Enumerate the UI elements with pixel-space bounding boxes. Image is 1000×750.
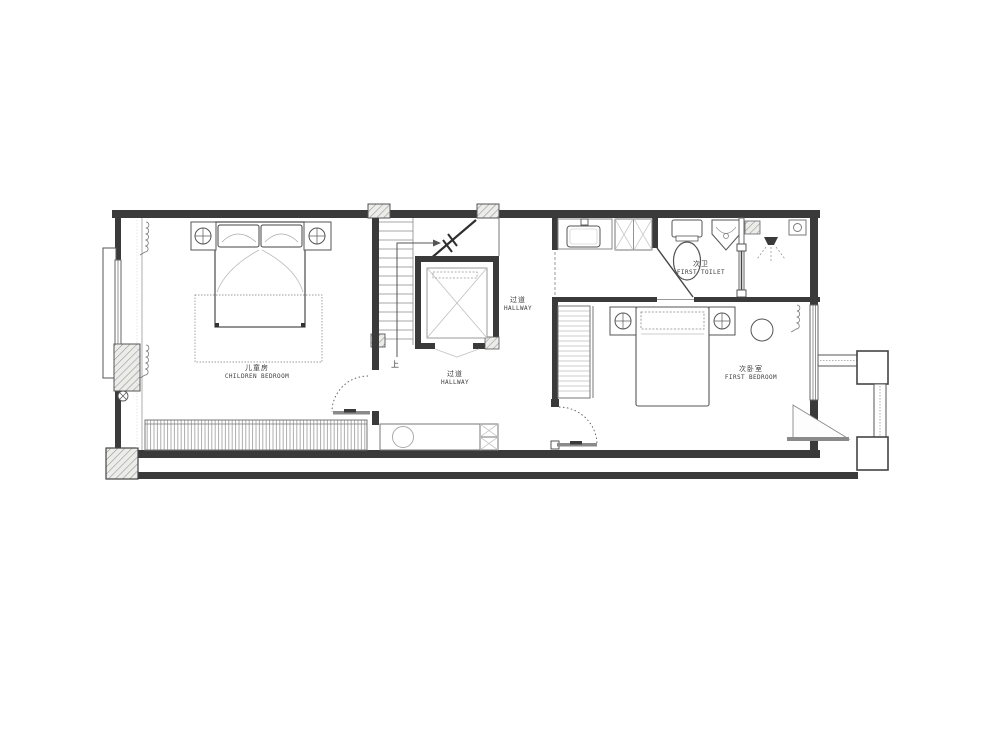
wall-top [112, 210, 820, 218]
room-label-children-bedroom: 儿童房 CHILDREN BEDROOM [225, 363, 289, 382]
room-label-first-bedroom: 次卧室 FIRST BEDROOM [725, 364, 777, 383]
curtain-right-icon [791, 305, 800, 332]
stair-up-label: 上 [391, 359, 399, 370]
first-bedroom-door [551, 407, 597, 449]
children-nightstand-right [304, 222, 331, 250]
vanity [558, 219, 652, 250]
corner-block-bottom-left [106, 448, 138, 479]
floor-plan-drawing [0, 0, 1000, 750]
room-label-hallway-main-en: HALLWAY [441, 379, 469, 388]
room-label-hallway-main-zh: 过道 [441, 369, 469, 379]
bedroom-round-table [751, 319, 773, 341]
basin-circle [393, 427, 414, 448]
pier-left-hatched [114, 344, 140, 391]
pier-top-wall-2 [477, 204, 499, 218]
room-label-first-toilet-zh: 次卫 [677, 259, 725, 269]
room-label-first-toilet-en: FIRST TOILET [677, 269, 725, 278]
children-bedroom-partition [372, 218, 379, 425]
room-label-hallway-upper-en: HALLWAY [504, 305, 532, 314]
children-bed [215, 222, 305, 327]
hallway-cabinet [380, 424, 498, 450]
drain-symbol [118, 391, 128, 401]
wall-bottom [115, 450, 820, 458]
showerhead-icon [757, 237, 785, 261]
balcony [818, 351, 888, 470]
shower-niche-hatch [745, 221, 760, 234]
room-label-children-bedroom-en: CHILDREN BEDROOM [225, 373, 289, 382]
faucet-icon [581, 219, 588, 225]
door-swing-arc [559, 407, 597, 445]
curtain-left-top-icon [140, 222, 149, 255]
wall-right-upper [810, 210, 818, 305]
pillow-left [218, 225, 259, 247]
curtain-left-bottom-icon [140, 345, 149, 378]
floor-plan-canvas: 儿童房 CHILDREN BEDROOM 过道 HALLWAY 过道 HALLW… [0, 0, 1000, 750]
corner-basin [712, 220, 740, 250]
children-bedroom-door [332, 376, 370, 415]
room-label-first-bedroom-zh: 次卧室 [725, 364, 777, 374]
elevator-door-swing [435, 349, 479, 357]
vent-icon [789, 220, 806, 235]
bedroom-nightstand-left [610, 307, 636, 335]
balcony-column-bottom [857, 437, 888, 470]
room-label-first-bedroom-en: FIRST BEDROOM [725, 374, 777, 383]
balcony-column-top [857, 351, 888, 384]
room-label-hallway-upper: 过道 HALLWAY [504, 295, 532, 314]
children-nightstand-left [191, 222, 216, 250]
pier-top-wall-1 [368, 204, 390, 218]
room-label-children-bedroom-zh: 儿童房 [225, 363, 289, 373]
elevator [415, 256, 499, 357]
bedroom-nightstand-right [709, 307, 735, 335]
room-label-hallway-upper-zh: 过道 [504, 295, 532, 305]
wall-bottom-outer [108, 472, 858, 479]
section-cut-line [429, 220, 476, 260]
elevator-corner-hatch [485, 337, 499, 349]
stair-direction-arrow [433, 240, 441, 247]
first-bedroom-wardrobe [558, 306, 593, 398]
children-wardrobe [145, 420, 367, 450]
first-bedroom-bed [636, 307, 709, 406]
room-label-first-toilet: 次卫 FIRST TOILET [677, 259, 725, 278]
window-right [810, 305, 818, 400]
pillow-right [261, 225, 302, 247]
door-swing-arc [332, 376, 368, 412]
room-label-hallway-main: 过道 HALLWAY [441, 369, 469, 388]
shower [737, 218, 806, 297]
